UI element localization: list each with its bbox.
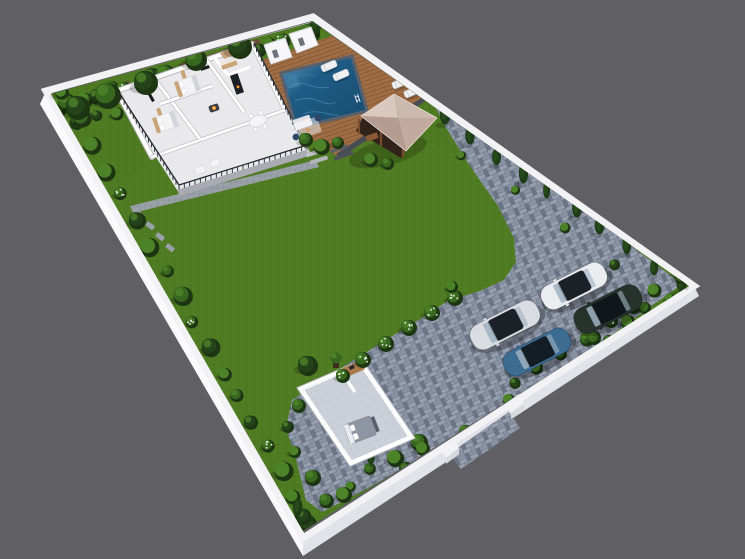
- site-plan-render: [0, 0, 745, 559]
- coffee-table: [306, 128, 311, 133]
- armchair: [315, 115, 322, 122]
- armchair: [293, 134, 300, 141]
- site-plan-svg: [0, 0, 745, 559]
